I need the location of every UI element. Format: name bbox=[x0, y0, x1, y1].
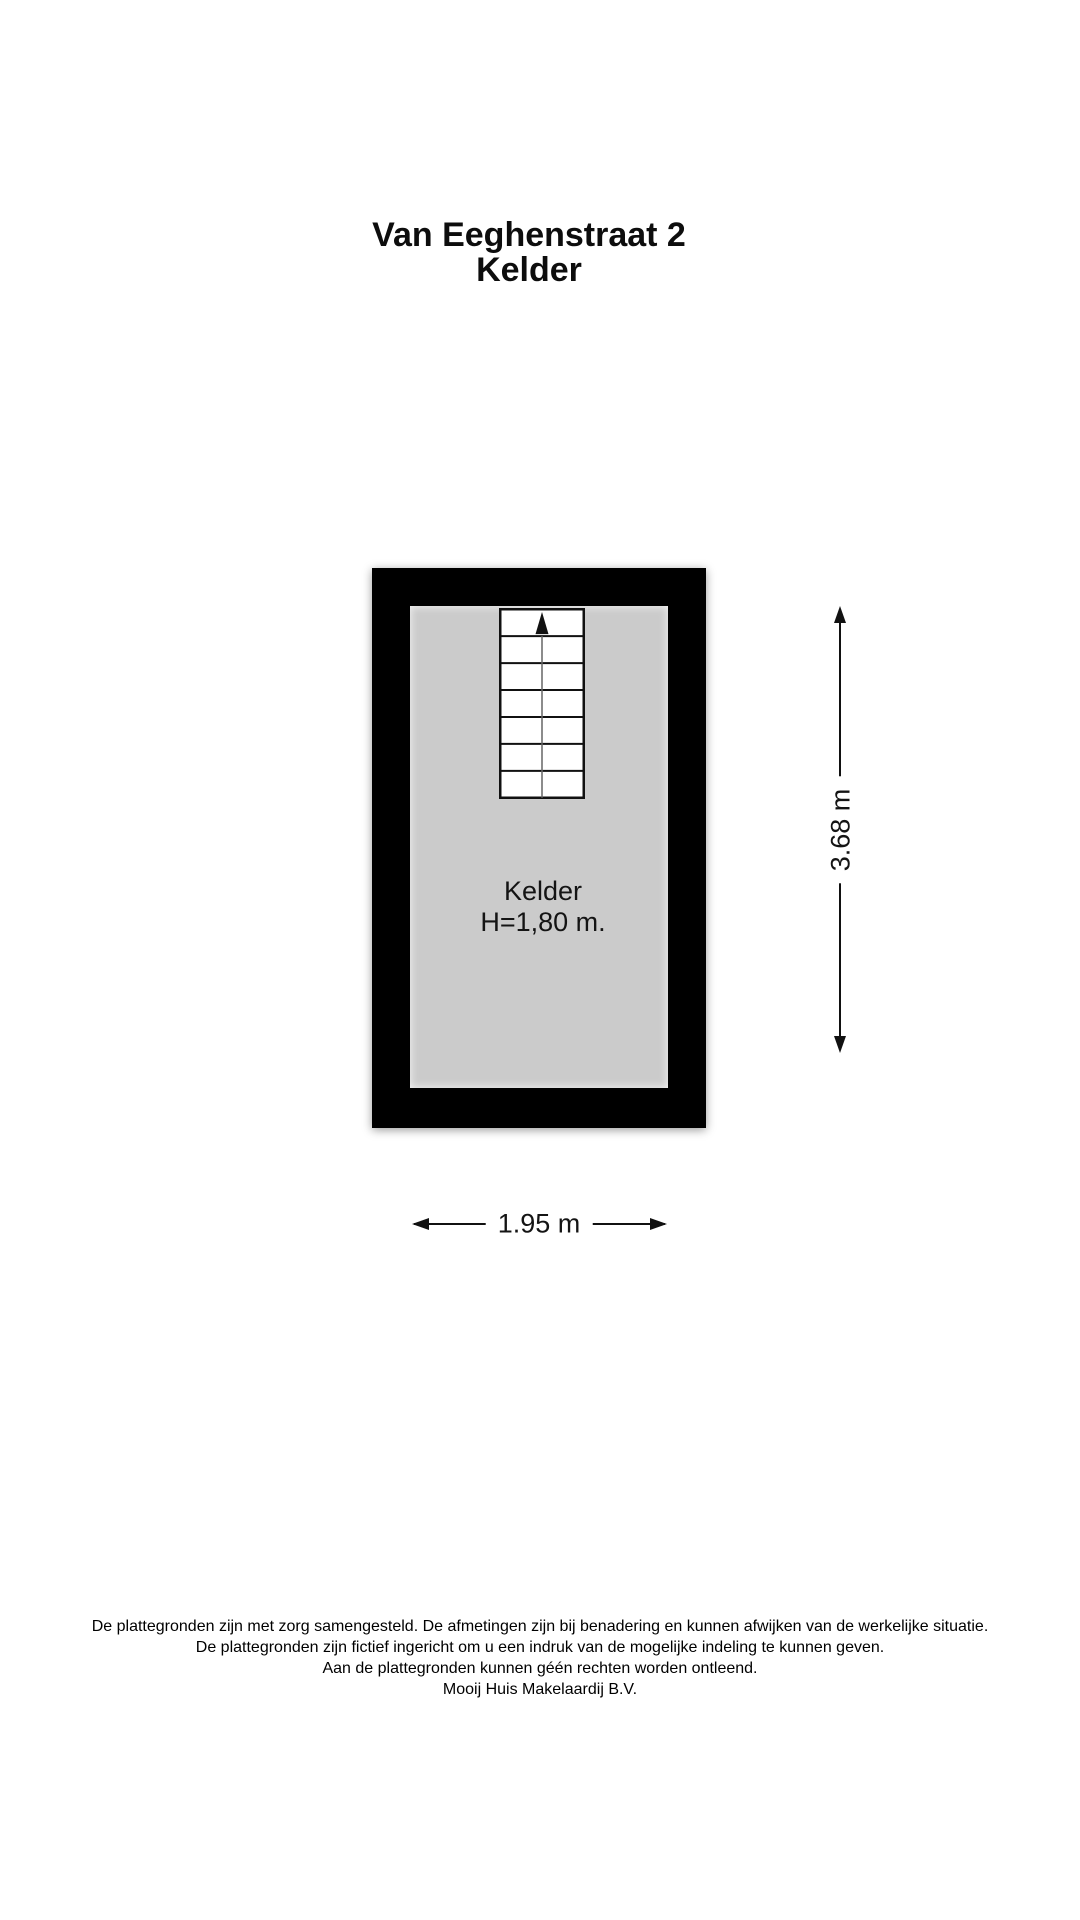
title-address: Van Eeghenstraat 2 bbox=[372, 218, 686, 253]
disclaimer-line: De plattegronden zijn met zorg samengest… bbox=[0, 1616, 1080, 1637]
footer-disclaimer: De plattegronden zijn met zorg samengest… bbox=[0, 1616, 1080, 1700]
dimension-arrow-left-icon bbox=[412, 1218, 429, 1230]
room-name: Kelder bbox=[480, 876, 605, 907]
stairs-svg bbox=[499, 608, 585, 799]
room-label: Kelder H=1,80 m. bbox=[480, 876, 605, 938]
disclaimer-line: De plattegronden zijn fictief ingericht … bbox=[0, 1637, 1080, 1658]
dimension-arrow-right-icon bbox=[650, 1218, 667, 1230]
company-name: Mooij Huis Makelaardij B.V. bbox=[0, 1679, 1080, 1700]
dimension-arrow-down-icon bbox=[834, 1036, 846, 1053]
room-ceiling-height: H=1,80 m. bbox=[480, 907, 605, 938]
title-floor-name: Kelder bbox=[372, 253, 686, 288]
floor-plan: Kelder H=1,80 m. bbox=[372, 568, 706, 1128]
vertical-dimension-label: 3.68 m bbox=[824, 777, 859, 884]
horizontal-dimension-label: 1.95 m bbox=[486, 1207, 593, 1242]
disclaimer-line: Aan de plattegronden kunnen géén rechten… bbox=[0, 1658, 1080, 1679]
page-title: Van Eeghenstraat 2 Kelder bbox=[372, 218, 686, 288]
dimension-arrow-up-icon bbox=[834, 606, 846, 623]
